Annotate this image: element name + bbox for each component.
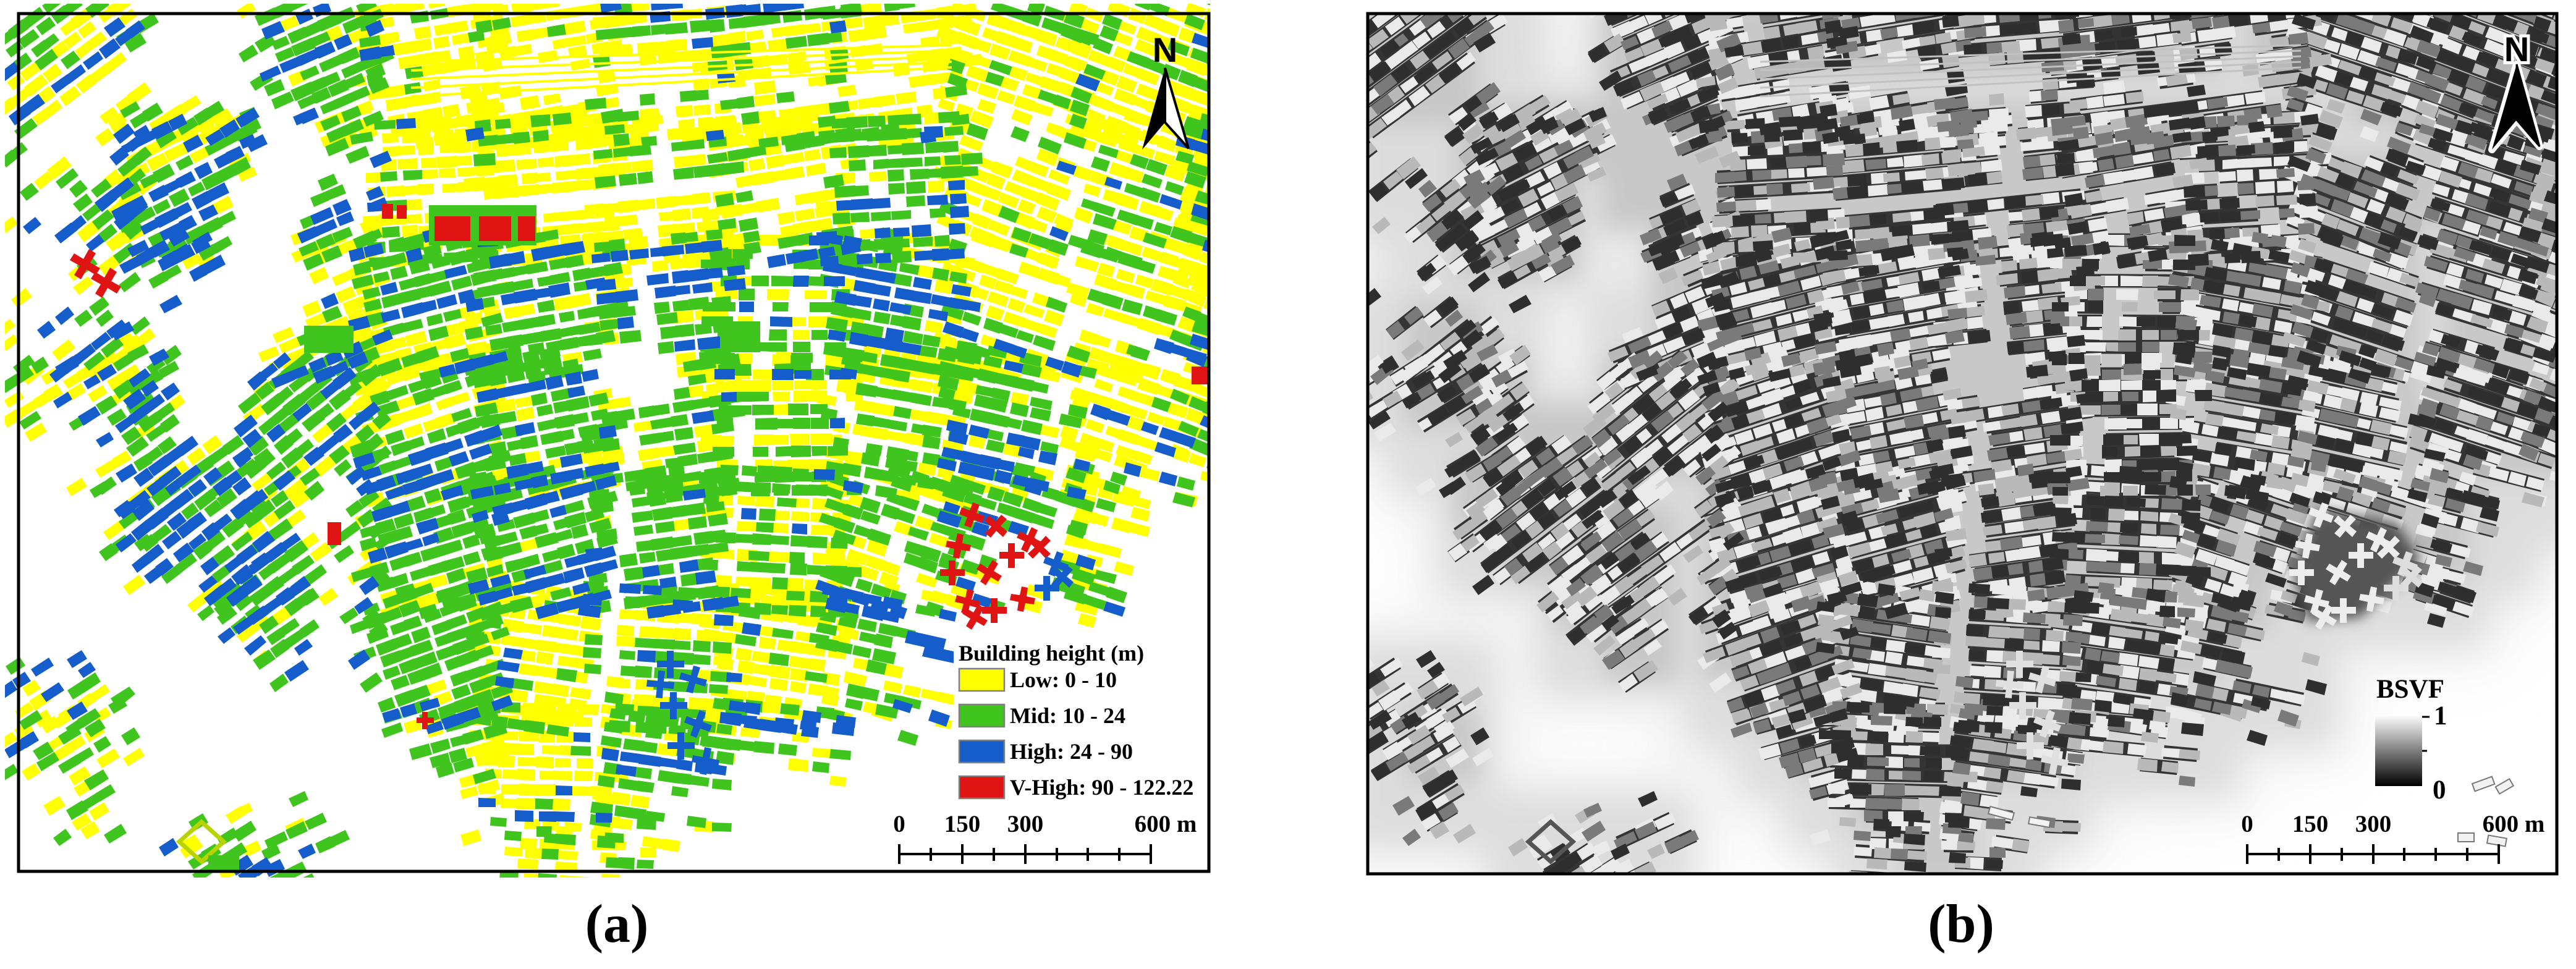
svg-text:(a): (a) [585, 894, 649, 954]
svg-text:0: 0 [2433, 776, 2446, 805]
svg-text:300: 300 [1007, 811, 1044, 837]
svg-text:1: 1 [2434, 701, 2447, 730]
svg-text:0: 0 [893, 811, 905, 837]
svg-text:300: 300 [2355, 811, 2392, 837]
svg-text:600 m: 600 m [2483, 811, 2545, 837]
svg-text:V-High: 90 - 122.22: V-High: 90 - 122.22 [1010, 775, 1193, 800]
svg-text:150: 150 [944, 811, 981, 837]
svg-text:N: N [1153, 30, 1177, 69]
svg-text:150: 150 [2292, 811, 2329, 837]
svg-text:BSVF: BSVF [2376, 675, 2444, 704]
svg-text:High: 24 - 90: High: 24 - 90 [1010, 739, 1133, 764]
svg-text:(b): (b) [1928, 894, 1994, 954]
svg-text:Low: 0 - 10: Low: 0 - 10 [1010, 667, 1117, 692]
svg-text:0: 0 [2241, 811, 2253, 837]
svg-text:Mid: 10 - 24: Mid: 10 - 24 [1010, 703, 1125, 728]
svg-text:Building height (m): Building height (m) [959, 641, 1144, 666]
svg-text:600 m: 600 m [1135, 811, 1197, 837]
